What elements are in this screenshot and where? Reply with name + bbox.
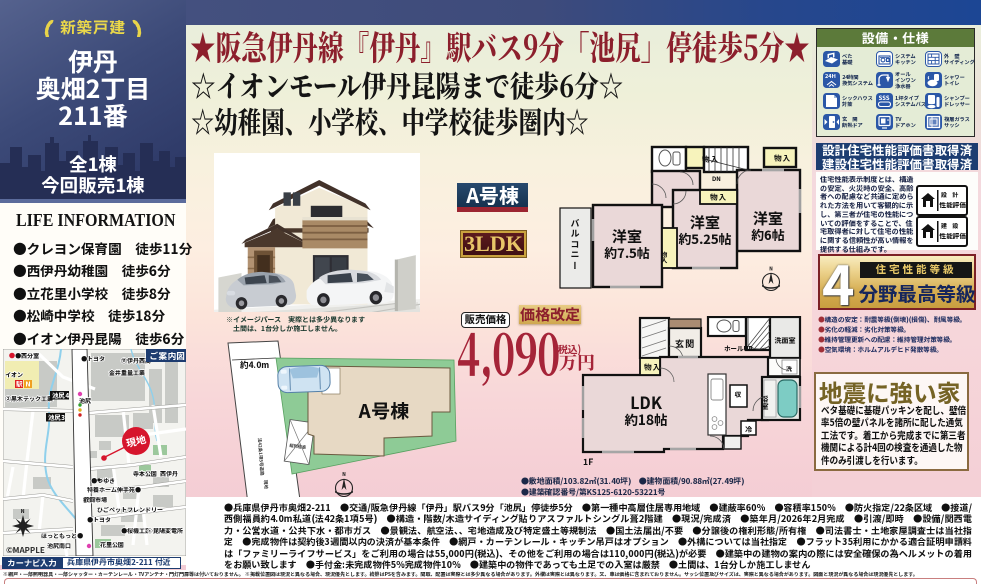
svg-text:物入: 物入 — [643, 362, 661, 373]
svg-text:ホールUP: ホールUP — [724, 343, 753, 353]
svg-text:池尻南口: 池尻南口 — [47, 541, 71, 550]
svg-text:寺本公園: 寺本公園 — [132, 469, 157, 478]
svg-text:約18帖: 約18帖 — [625, 409, 668, 429]
svg-text:●トヨタ: ●トヨタ — [81, 354, 105, 363]
svg-text:花里公園: 花里公園 — [100, 540, 124, 549]
svg-text:●トヨタ: ●トヨタ — [87, 515, 111, 524]
svg-text:冷: 冷 — [744, 425, 752, 435]
svg-text:駅: 駅 — [16, 379, 23, 389]
svg-text:●西分室: ●西分室 — [15, 351, 40, 360]
svg-text:②黒木テック工業: ②黒木テック工業 — [5, 394, 53, 403]
svg-text:物入: 物入 — [659, 251, 669, 264]
svg-text:N: N — [342, 471, 346, 478]
svg-text:A号棟: A号棟 — [359, 397, 409, 424]
svg-text:約7.5帖: 約7.5帖 — [604, 243, 650, 262]
svg-text:ご案内図: ご案内図 — [150, 350, 186, 362]
svg-text:約4.0m: 約4.0m — [240, 359, 270, 371]
svg-text:◇昆陽変電所: ◇昆陽変電所 — [147, 526, 183, 535]
svg-text:金井重量工業: 金井重量工業 — [108, 368, 145, 377]
svg-text:西伊丹: 西伊丹 — [160, 469, 178, 478]
svg-text:約5.25帖: 約5.25帖 — [678, 229, 731, 248]
svg-text:池尻4: 池尻4 — [51, 390, 70, 400]
svg-text:バルコニー: バルコニー — [569, 218, 582, 271]
svg-text:洗: 洗 — [785, 364, 792, 373]
svg-text:叡鋼市場: 叡鋼市場 — [83, 495, 107, 504]
svg-text:設 計: 設 計 — [941, 190, 960, 199]
svg-text:浴室: 浴室 — [760, 396, 770, 410]
svg-text:性能評価: 性能評価 — [939, 200, 967, 210]
svg-text:洗面室: 洗面室 — [775, 336, 796, 346]
svg-text:DN: DN — [712, 174, 721, 183]
svg-text:物入: 物入 — [709, 192, 727, 203]
svg-text:現地: 現地 — [262, 479, 269, 490]
svg-text:物入: 物入 — [701, 154, 719, 165]
svg-text:池尻3: 池尻3 — [47, 412, 65, 422]
svg-text:ほっともっと●: ほっともっと● — [41, 531, 83, 540]
svg-text:1F: 1F — [583, 456, 593, 468]
svg-text:建 設: 建 設 — [941, 221, 960, 230]
svg-text:24H: 24H — [825, 72, 836, 80]
svg-text:N: N — [769, 266, 773, 273]
svg-text:©MAPPLE: ©MAPPLE — [6, 545, 45, 556]
svg-text:特養ホーム伸手苑●: 特養ホーム伸手苑● — [87, 485, 141, 494]
svg-text:SSS: SSS — [879, 93, 890, 102]
svg-text:●つゆき: ●つゆき — [91, 476, 115, 485]
svg-text:玄関: 玄関 — [675, 337, 695, 350]
svg-text:性能評価: 性能評価 — [939, 231, 967, 241]
svg-text:N: N — [21, 507, 25, 515]
svg-text:N: N — [26, 379, 31, 389]
svg-text:ひごペットフレンドリー: ひごペットフレンドリー — [97, 505, 163, 514]
svg-text:収: 収 — [733, 391, 743, 398]
svg-text:約6帖: 約6帖 — [751, 225, 785, 244]
svg-text:物入: 物入 — [773, 153, 791, 164]
